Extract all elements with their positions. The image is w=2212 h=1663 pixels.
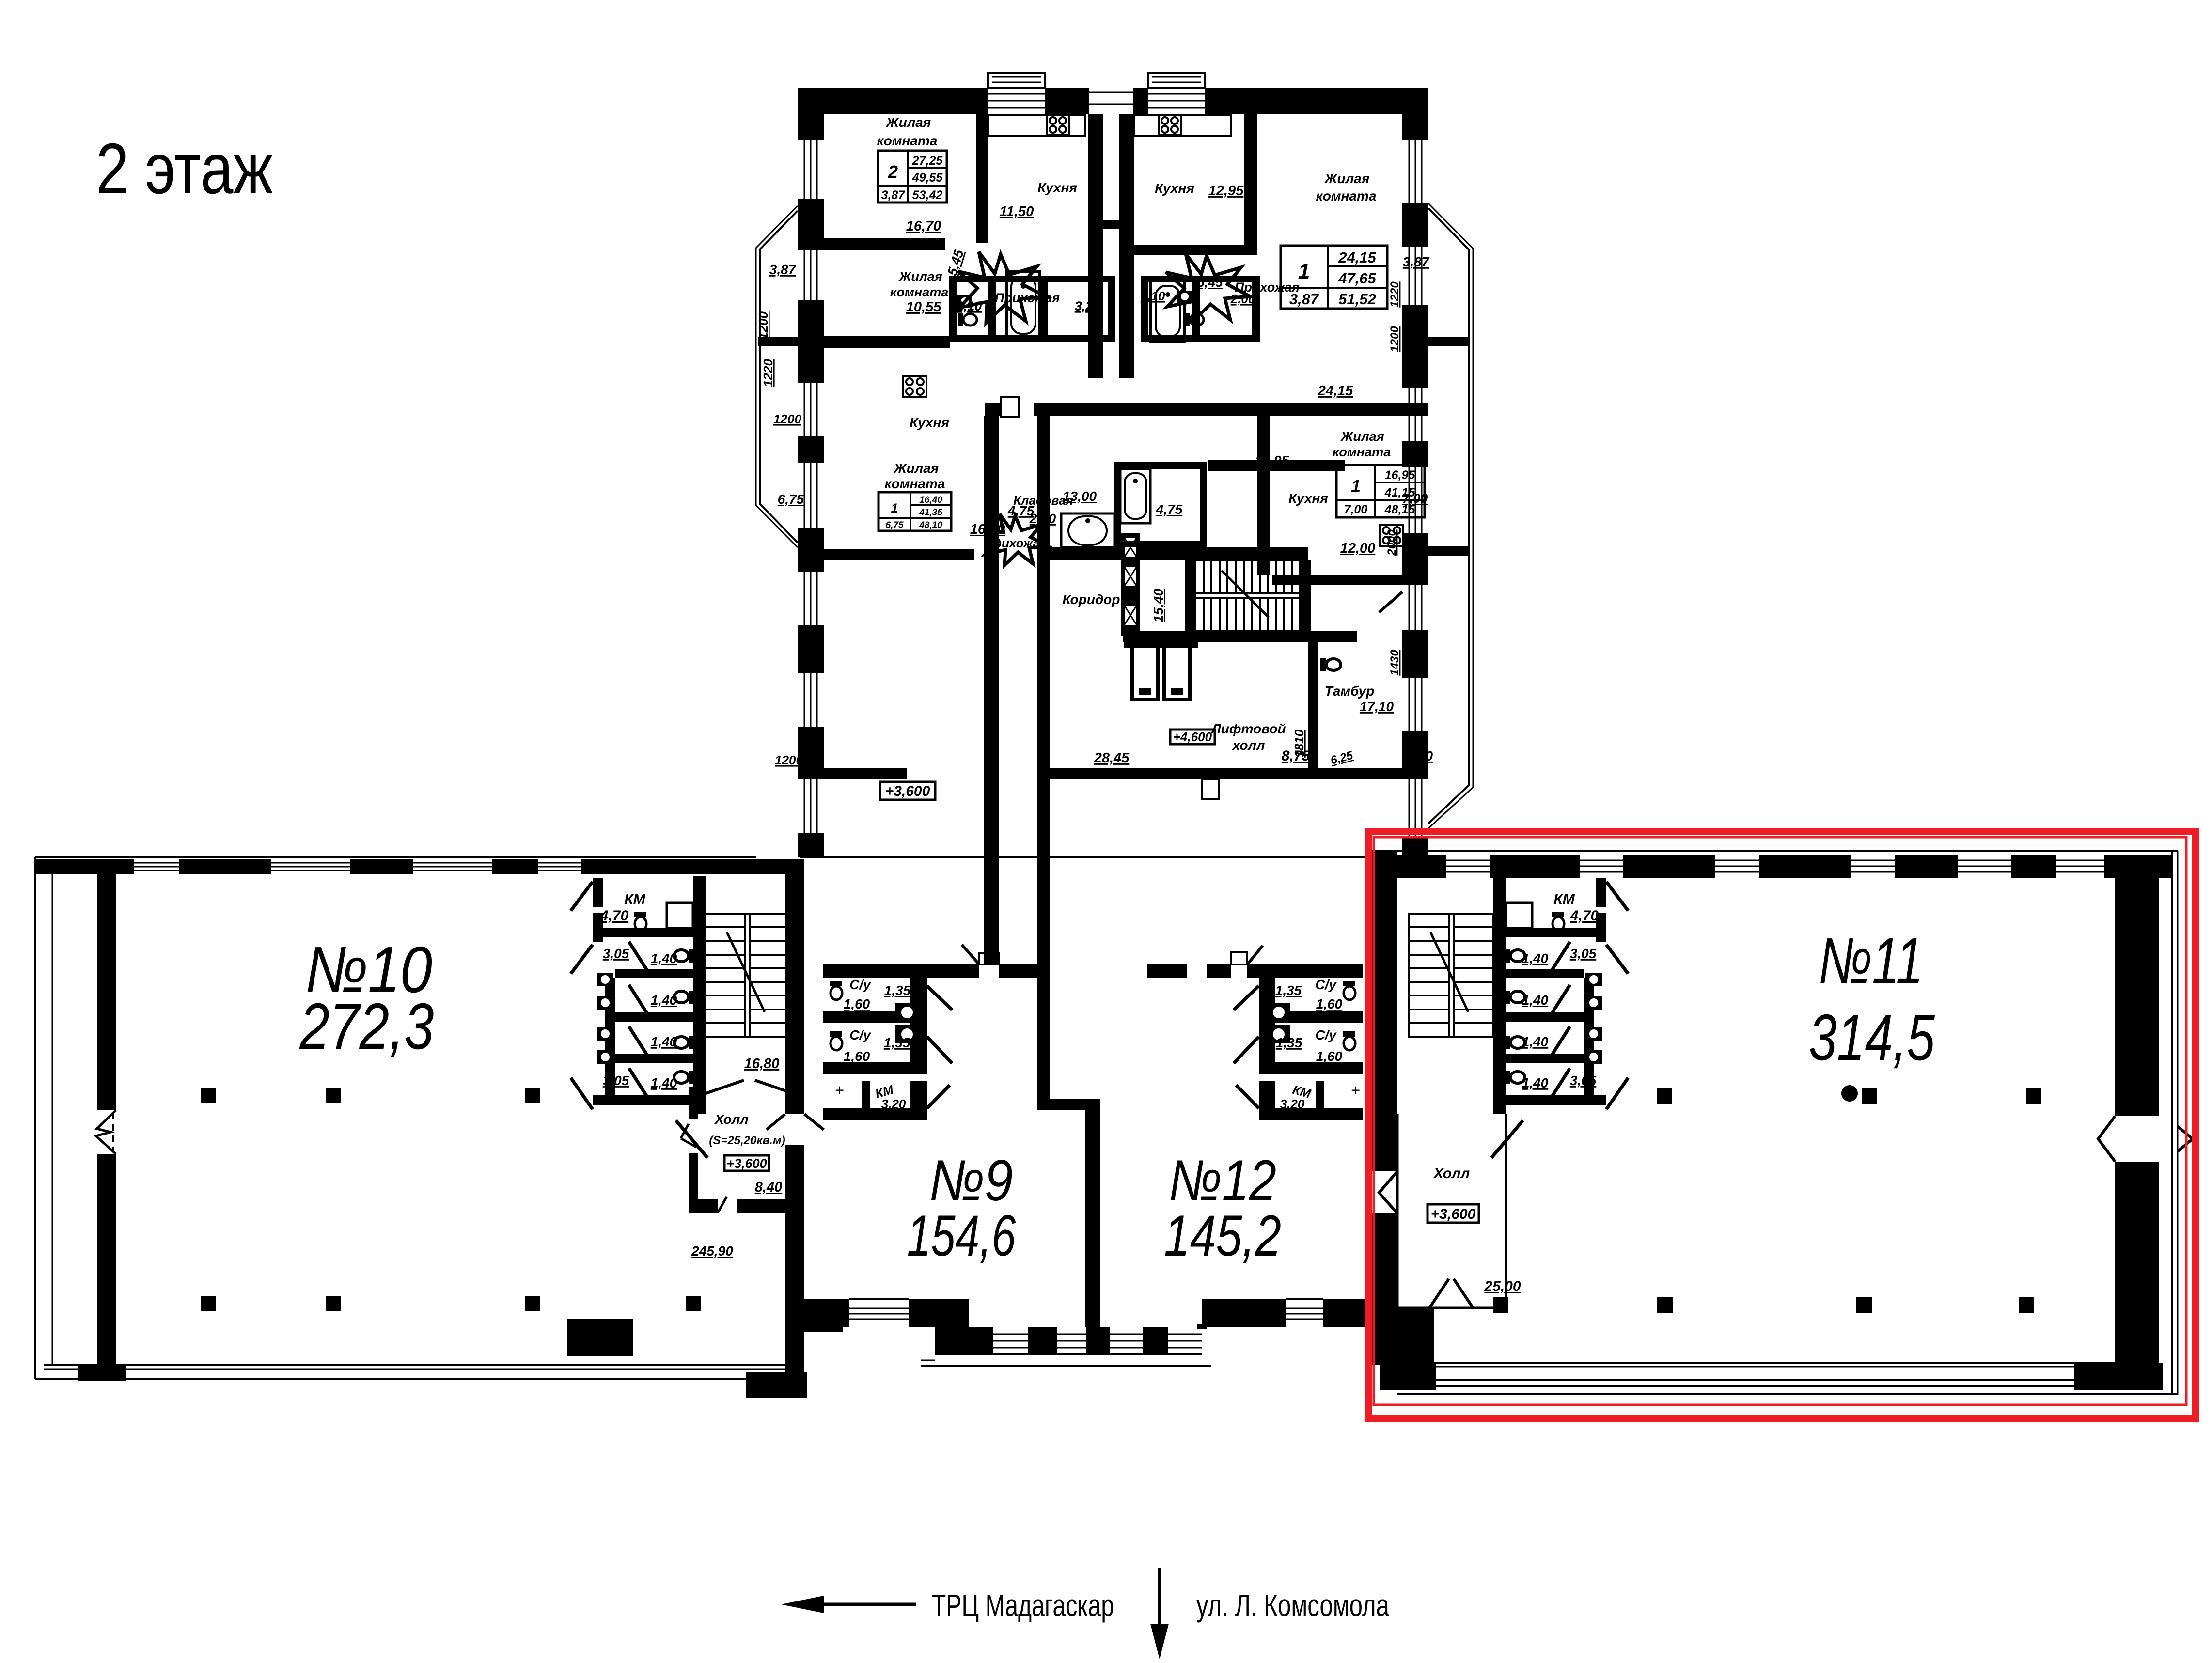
- svg-text:ТРЦ Мадагаскар: ТРЦ Мадагаскар: [932, 1588, 1114, 1623]
- svg-text:245,90: 245,90: [691, 1243, 733, 1259]
- svg-text:6,75: 6,75: [778, 492, 804, 507]
- svg-text:1,60: 1,60: [1316, 1049, 1343, 1064]
- svg-text:16,40: 16,40: [970, 522, 1005, 537]
- svg-text:2000: 2000: [1385, 529, 1398, 556]
- svg-text:комната: комната: [877, 133, 938, 148]
- svg-text:+3,600: +3,600: [726, 1156, 767, 1171]
- svg-text:1,40: 1,40: [651, 951, 677, 966]
- svg-text:47,65: 47,65: [1338, 270, 1376, 287]
- svg-text:ул. Л. Комсомола: ул. Л. Комсомола: [1196, 1588, 1389, 1623]
- svg-text:+3,600: +3,600: [1431, 1206, 1476, 1222]
- svg-text:3,87: 3,87: [1403, 254, 1430, 269]
- svg-text:1,40: 1,40: [1522, 1034, 1549, 1049]
- svg-text:Кухня: Кухня: [910, 415, 949, 430]
- svg-text:Холл: Холл: [714, 1112, 749, 1127]
- svg-text:8,75: 8,75: [1282, 748, 1311, 764]
- svg-text:+: +: [1351, 1082, 1360, 1100]
- svg-text:145,2: 145,2: [1164, 1203, 1281, 1268]
- svg-text:1,60: 1,60: [844, 996, 870, 1011]
- svg-text:1,35: 1,35: [1276, 1035, 1302, 1050]
- svg-text:5,45: 5,45: [1197, 275, 1224, 290]
- svg-text:С/у: С/у: [849, 977, 871, 992]
- svg-text:3,05: 3,05: [1570, 946, 1597, 961]
- svg-text:Лифтовой: Лифтовой: [1210, 721, 1286, 736]
- svg-text:1: 1: [891, 501, 898, 515]
- svg-text:Жилая: Жилая: [1340, 429, 1384, 444]
- svg-text:№11: №11: [1819, 924, 1923, 997]
- svg-text:7,00: 7,00: [1402, 491, 1428, 506]
- svg-text:27,25: 27,25: [912, 154, 943, 168]
- svg-text:(S=25,20кв.м): (S=25,20кв.м): [709, 1134, 785, 1147]
- svg-text:4,70: 4,70: [600, 908, 629, 924]
- svg-text:12,00: 12,00: [1340, 541, 1376, 556]
- svg-text:3,10: 3,10: [1141, 289, 1165, 303]
- svg-text:41,35: 41,35: [919, 508, 942, 518]
- svg-text:1200: 1200: [773, 412, 801, 426]
- svg-text:1: 1: [1298, 260, 1310, 283]
- svg-text:1: 1: [1351, 476, 1361, 496]
- svg-text:Кухня: Кухня: [1288, 491, 1328, 506]
- svg-text:+: +: [835, 1082, 844, 1100]
- svg-text:12,95: 12,95: [1208, 183, 1244, 199]
- svg-text:КМ: КМ: [1553, 891, 1575, 907]
- svg-text:Жилая: Жилая: [1324, 171, 1370, 186]
- svg-text:комната: комната: [1316, 188, 1377, 203]
- svg-text:1,60: 1,60: [1316, 996, 1343, 1011]
- svg-text:2: 2: [888, 162, 898, 182]
- svg-text:С/у: С/у: [849, 1027, 871, 1042]
- svg-text:2 этаж: 2 этаж: [96, 129, 273, 209]
- svg-text:1200: 1200: [1388, 326, 1401, 352]
- svg-text:28,45: 28,45: [1094, 750, 1130, 766]
- svg-text:1,40: 1,40: [651, 993, 677, 1008]
- svg-text:Коридор: Коридор: [1063, 592, 1120, 607]
- svg-text:4,75: 4,75: [1156, 502, 1183, 517]
- svg-text:7,00: 7,00: [1344, 503, 1368, 516]
- svg-text:комната: комната: [890, 285, 949, 299]
- svg-text:1200: 1200: [1403, 748, 1433, 763]
- svg-text:272,3: 272,3: [299, 990, 434, 1063]
- svg-text:1220: 1220: [1388, 281, 1401, 308]
- svg-text:Холл: Холл: [1433, 1166, 1470, 1181]
- svg-text:11,50: 11,50: [1000, 204, 1034, 219]
- svg-text:3,20: 3,20: [1280, 1097, 1305, 1111]
- svg-text:1,35: 1,35: [884, 983, 911, 998]
- svg-text:25,00: 25,00: [1484, 1278, 1521, 1294]
- svg-text:Жилая: Жилая: [893, 461, 939, 476]
- svg-text:1,35: 1,35: [1275, 983, 1302, 998]
- svg-text:1220: 1220: [761, 359, 775, 387]
- svg-text:комната: комната: [1333, 445, 1391, 459]
- svg-text:16,70: 16,70: [906, 218, 941, 234]
- svg-text:51,52: 51,52: [1338, 291, 1376, 308]
- svg-text:КМ: КМ: [624, 891, 645, 907]
- svg-text:154,6: 154,6: [907, 1203, 1016, 1268]
- svg-text:Жилая: Жилая: [885, 115, 931, 130]
- svg-text:3,20: 3,20: [881, 1097, 906, 1111]
- svg-text:53,42: 53,42: [912, 188, 943, 202]
- svg-text:С/у: С/у: [1315, 977, 1337, 992]
- svg-text:комната: комната: [885, 476, 945, 491]
- svg-text:2,10: 2,10: [956, 299, 982, 313]
- svg-text:1,40: 1,40: [651, 1034, 677, 1049]
- svg-text:Прихожая: Прихожая: [985, 536, 1047, 550]
- svg-text:+3,600: +3,600: [885, 783, 930, 799]
- svg-text:314,5: 314,5: [1809, 1001, 1935, 1074]
- svg-text:15,40: 15,40: [1151, 589, 1166, 622]
- svg-text:24,15: 24,15: [1318, 383, 1353, 399]
- svg-text:1,40: 1,40: [1522, 951, 1549, 966]
- svg-text:4,70: 4,70: [1570, 908, 1599, 924]
- svg-text:3,05: 3,05: [603, 1073, 629, 1088]
- svg-text:Кухня: Кухня: [1037, 180, 1077, 195]
- svg-text:16,95: 16,95: [1385, 468, 1416, 482]
- svg-text:1,40: 1,40: [1522, 1075, 1549, 1090]
- svg-text:48,10: 48,10: [919, 520, 942, 530]
- svg-text:1,40: 1,40: [1522, 993, 1549, 1008]
- svg-text:Кухня: Кухня: [1155, 181, 1194, 196]
- svg-text:6,75: 6,75: [886, 520, 904, 530]
- svg-text:24,15: 24,15: [1338, 249, 1376, 266]
- svg-text:3,05: 3,05: [1570, 1073, 1597, 1088]
- svg-text:Жилая: Жилая: [898, 269, 942, 284]
- svg-text:С/у: С/у: [1315, 1027, 1337, 1042]
- svg-text:3,87: 3,87: [769, 262, 797, 277]
- svg-text:3,05: 3,05: [603, 946, 629, 961]
- svg-text:1,40: 1,40: [651, 1075, 677, 1090]
- svg-text:16,95: 16,95: [1255, 453, 1289, 468]
- svg-text:1430: 1430: [1388, 650, 1401, 676]
- svg-text:1200: 1200: [756, 311, 770, 340]
- svg-text:4,75: 4,75: [1007, 503, 1035, 518]
- svg-text:2,00: 2,00: [1230, 292, 1255, 306]
- svg-text:49,55: 49,55: [912, 171, 943, 185]
- svg-text:3,87: 3,87: [881, 188, 906, 202]
- svg-text:1200: 1200: [775, 753, 803, 767]
- svg-text:16,80: 16,80: [744, 1056, 780, 1072]
- svg-text:холл: холл: [1232, 738, 1265, 753]
- svg-text:+4,600: +4,600: [1173, 730, 1212, 744]
- svg-text:8,40: 8,40: [755, 1180, 782, 1195]
- svg-text:3,25: 3,25: [1075, 299, 1101, 313]
- svg-text:16,40: 16,40: [919, 495, 942, 505]
- svg-text:Тамбур: Тамбур: [1325, 684, 1375, 699]
- svg-text:17,10: 17,10: [1360, 699, 1394, 714]
- svg-text:1,35: 1,35: [884, 1035, 910, 1050]
- svg-text:1,60: 1,60: [844, 1049, 870, 1064]
- svg-text:Прихожая: Прихожая: [995, 291, 1060, 305]
- svg-text:10,55: 10,55: [906, 299, 941, 315]
